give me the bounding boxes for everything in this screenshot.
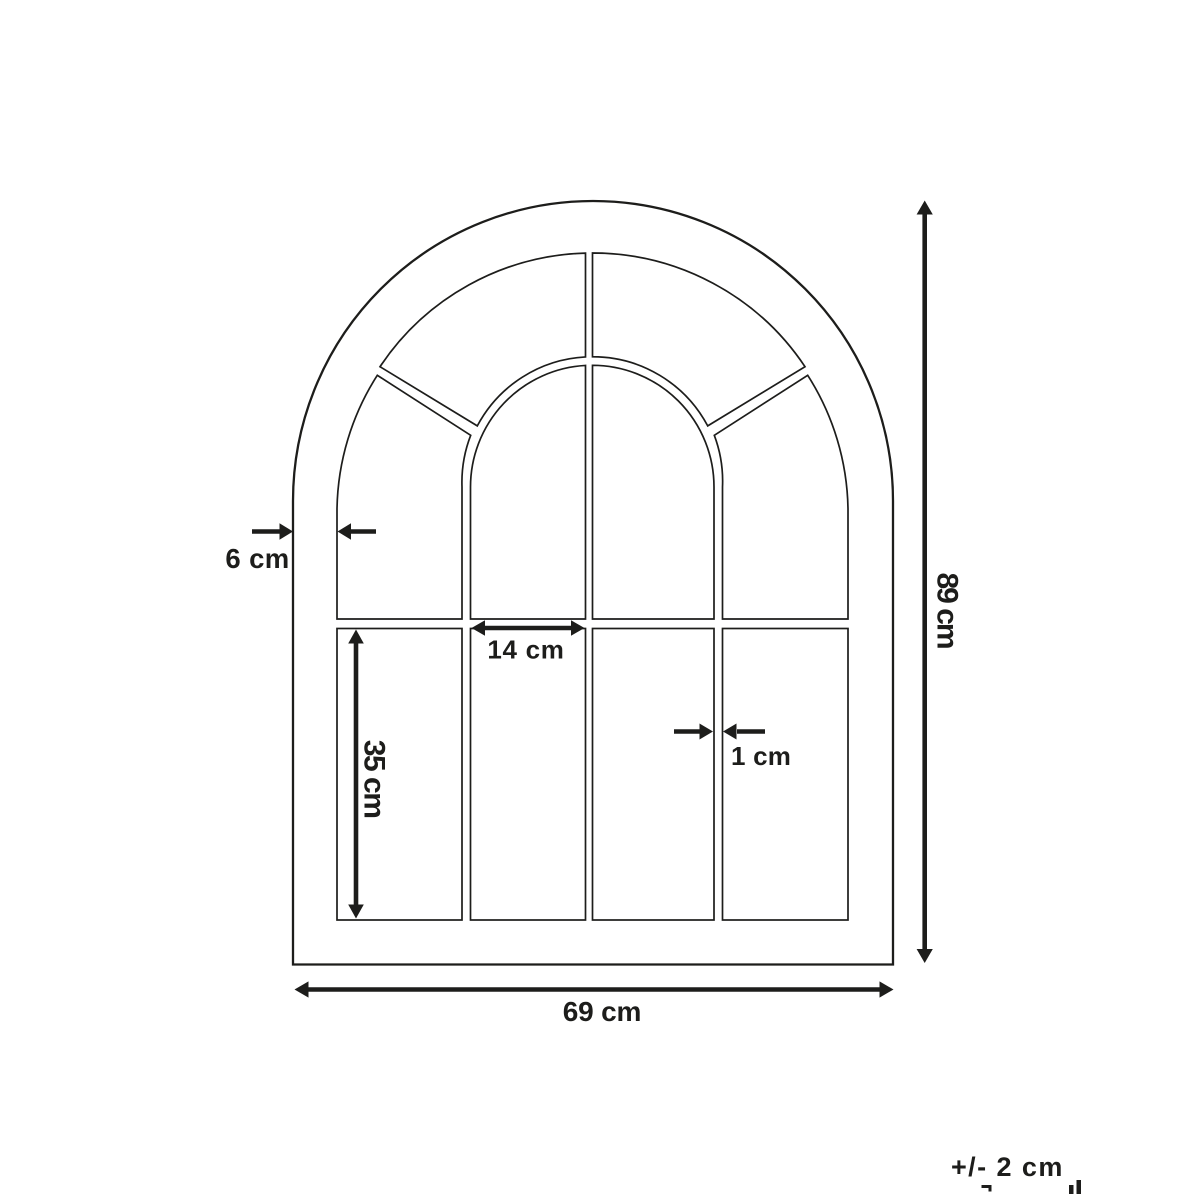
svg-text:69 cm: 69 cm: [563, 996, 641, 1027]
svg-text:6 cm: 6 cm: [225, 543, 289, 574]
svg-text:89 cm: 89 cm: [930, 573, 963, 648]
svg-text:1 cm: 1 cm: [731, 741, 791, 771]
svg-text:+/- 2 cm: +/- 2 cm: [951, 1152, 1064, 1182]
svg-text:14 cm: 14 cm: [487, 635, 564, 665]
svg-text:35 cm: 35 cm: [358, 740, 391, 818]
